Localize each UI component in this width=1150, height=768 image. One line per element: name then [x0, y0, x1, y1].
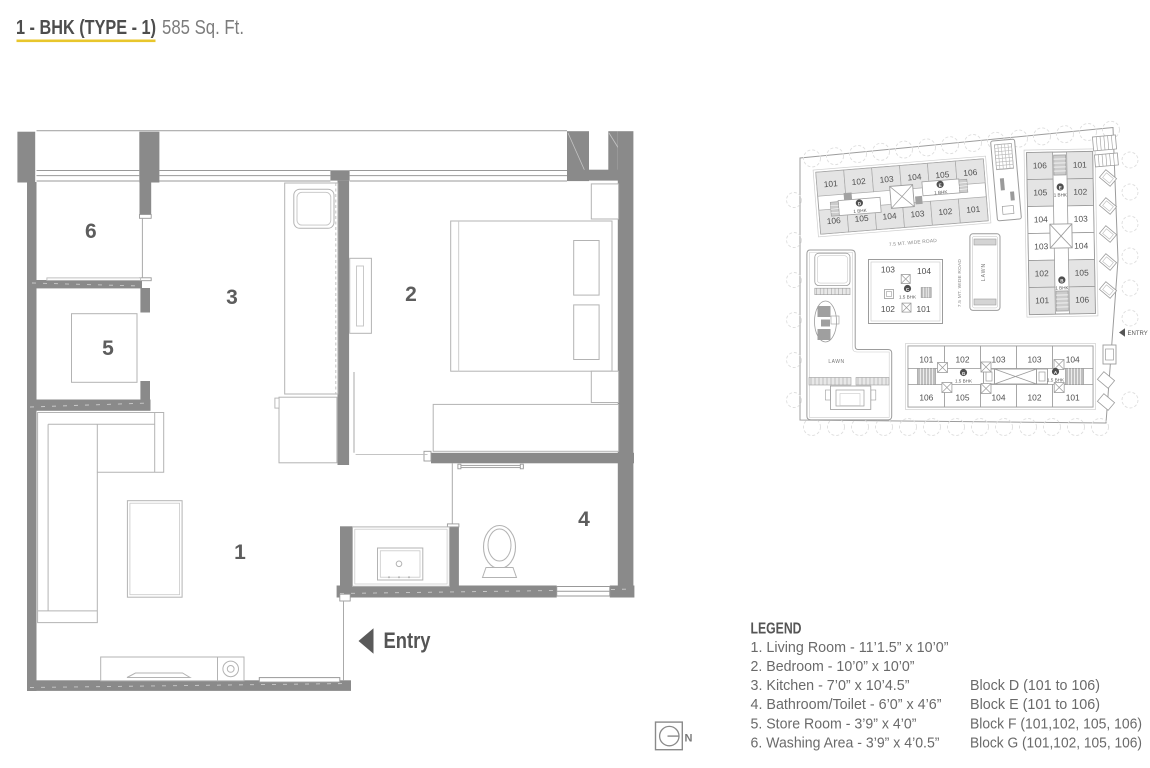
- svg-text:104: 104: [917, 266, 931, 276]
- svg-text:4: 4: [578, 508, 590, 531]
- svg-text:LAWN: LAWN: [828, 359, 844, 365]
- svg-text:Block G (101,102, 105, 106): Block G (101,102, 105, 106): [970, 734, 1142, 751]
- svg-text:E: E: [938, 183, 941, 188]
- svg-text:Entry: Entry: [384, 628, 432, 653]
- svg-text:103: 103: [1028, 355, 1042, 365]
- svg-text:1. Living Room - 11’1.5” x 10’: 1. Living Room - 11’1.5” x 10’0”: [751, 639, 949, 656]
- svg-text:104: 104: [907, 171, 922, 182]
- svg-text:1 - BHK (TYPE - 1): 1 - BHK (TYPE - 1): [16, 16, 156, 39]
- svg-text:5: 5: [102, 337, 114, 360]
- svg-text:N: N: [685, 733, 693, 745]
- svg-text:3. Kitchen - 7’0” x 10’4.5”: 3. Kitchen - 7’0” x 10’4.5”: [751, 677, 910, 694]
- svg-text:2. Bedroom - 10’0” x 10’0”: 2. Bedroom - 10’0” x 10’0”: [751, 658, 915, 675]
- svg-text:102: 102: [1073, 187, 1087, 197]
- svg-text:101: 101: [966, 204, 981, 215]
- svg-text:102: 102: [881, 304, 895, 314]
- svg-text:101: 101: [919, 355, 933, 365]
- svg-text:102: 102: [956, 355, 970, 365]
- svg-text:6: 6: [85, 220, 97, 243]
- svg-text:5. Store Room - 3’9” x 4’0”: 5. Store Room - 3’9” x 4’0”: [751, 715, 917, 732]
- svg-text:1.5 BHK: 1.5 BHK: [955, 379, 973, 384]
- svg-text:103: 103: [881, 265, 895, 275]
- svg-text:104: 104: [1066, 355, 1080, 365]
- svg-text:102: 102: [851, 176, 866, 187]
- svg-text:105: 105: [1075, 268, 1089, 278]
- svg-text:105: 105: [935, 169, 950, 180]
- svg-text:106: 106: [1075, 295, 1089, 305]
- svg-text:1: 1: [234, 541, 246, 564]
- svg-text:103: 103: [1034, 241, 1048, 251]
- svg-text:104: 104: [1034, 214, 1048, 224]
- svg-text:102: 102: [938, 206, 953, 217]
- svg-text:LEGEND: LEGEND: [751, 620, 802, 637]
- svg-text:102: 102: [1035, 268, 1049, 278]
- svg-text:1.5 BHK: 1.5 BHK: [1047, 378, 1065, 383]
- svg-text:105: 105: [1033, 187, 1047, 197]
- svg-text:6. Washing Area - 3’9” x 4’0.5: 6. Washing Area - 3’9” x 4’0.5”: [751, 734, 940, 751]
- svg-text:104: 104: [992, 393, 1006, 403]
- svg-text:101: 101: [1066, 393, 1080, 403]
- svg-text:101: 101: [1073, 160, 1087, 170]
- svg-text:ENTRY: ENTRY: [1128, 331, 1148, 337]
- svg-text:101: 101: [1035, 295, 1049, 305]
- svg-text:Block F (101,102, 105, 106): Block F (101,102, 105, 106): [970, 715, 1142, 732]
- svg-text:1 BHK: 1 BHK: [1054, 192, 1068, 197]
- svg-text:106: 106: [963, 167, 978, 178]
- svg-text:585 Sq. Ft.: 585 Sq. Ft.: [162, 16, 244, 39]
- svg-text:103: 103: [1074, 214, 1088, 224]
- svg-text:7.5 MT. WIDE ROAD: 7.5 MT. WIDE ROAD: [957, 259, 963, 308]
- svg-text:103: 103: [910, 208, 925, 219]
- svg-text:106: 106: [1033, 160, 1047, 170]
- svg-text:102: 102: [1028, 393, 1042, 403]
- svg-text:G: G: [962, 371, 966, 376]
- svg-text:1 BHK: 1 BHK: [1055, 285, 1069, 290]
- svg-text:Block D (101 to 106): Block D (101 to 106): [970, 677, 1100, 694]
- svg-text:3: 3: [226, 286, 238, 309]
- svg-text:4. Bathroom/Toilet - 6’0” x 4’: 4. Bathroom/Toilet - 6’0” x 4’6”: [751, 696, 942, 713]
- svg-text:2: 2: [405, 283, 417, 306]
- svg-text:Block E (101 to 106): Block E (101 to 106): [970, 696, 1100, 713]
- svg-text:E: E: [1059, 185, 1062, 190]
- svg-text:101: 101: [823, 178, 838, 189]
- svg-text:1.5 BHK: 1.5 BHK: [899, 295, 917, 300]
- svg-text:104: 104: [882, 210, 897, 221]
- svg-text:101: 101: [917, 304, 931, 314]
- svg-text:104: 104: [1074, 241, 1088, 251]
- svg-text:105: 105: [956, 393, 970, 403]
- svg-text:LAWN: LAWN: [981, 263, 987, 281]
- svg-text:106: 106: [826, 215, 841, 226]
- svg-text:103: 103: [992, 355, 1006, 365]
- svg-text:106: 106: [919, 393, 933, 403]
- svg-text:103: 103: [879, 174, 894, 185]
